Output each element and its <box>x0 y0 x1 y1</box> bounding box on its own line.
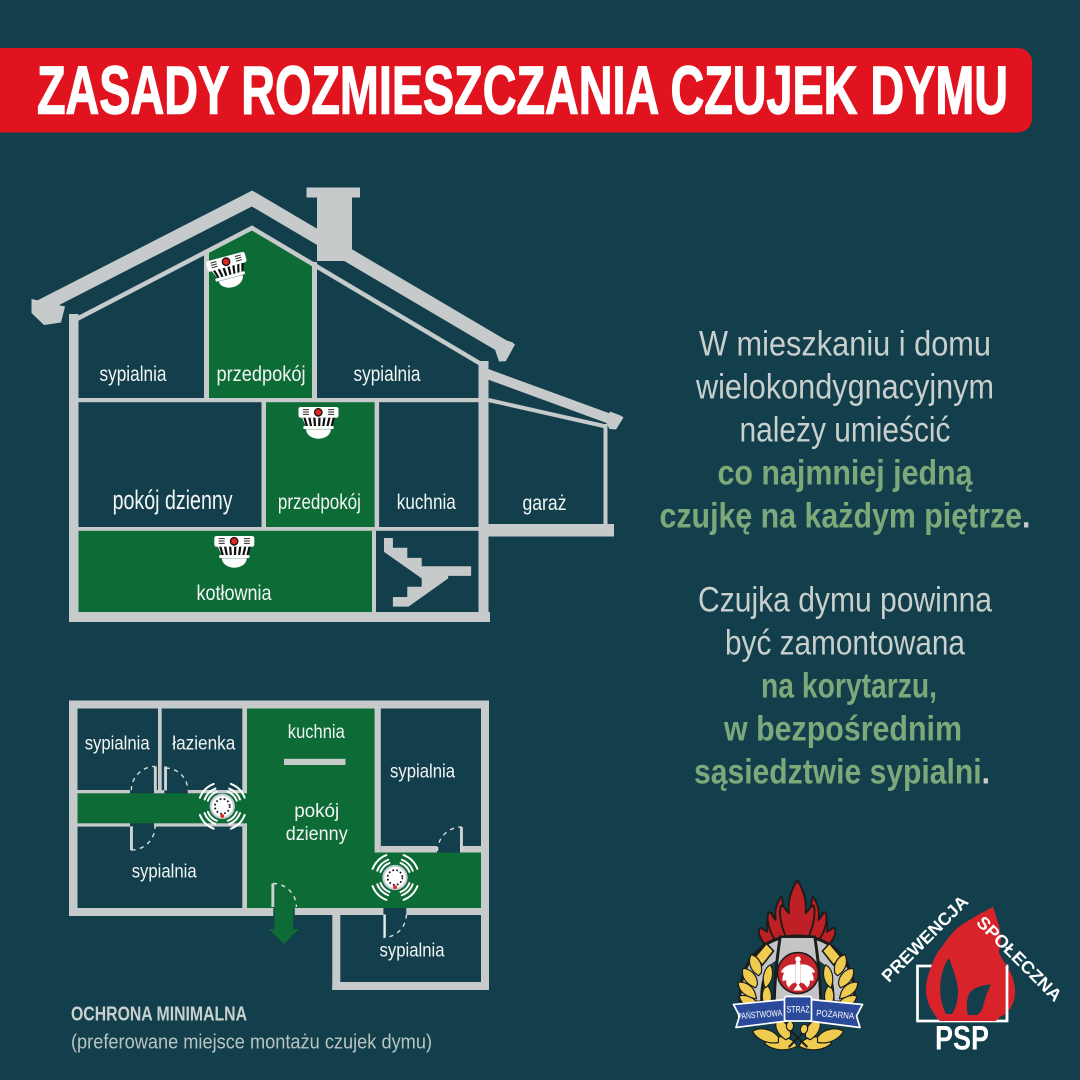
svg-text:garaż: garaż <box>523 491 567 515</box>
svg-text:W mieszkaniu i domu: W mieszkaniu i domu <box>699 324 991 364</box>
svg-text:sypialnia: sypialnia <box>85 733 150 755</box>
svg-text:dzienny: dzienny <box>286 823 348 845</box>
svg-text:należy umieścić: należy umieścić <box>740 410 951 450</box>
svg-text:sypialnia: sypialnia <box>390 761 455 783</box>
svg-text:pokój dzienny: pokój dzienny <box>113 485 233 515</box>
svg-text:przedpokój: przedpokój <box>278 490 361 514</box>
svg-text:kotłownia: kotłownia <box>197 581 272 605</box>
svg-text:STRAŻ: STRAŻ <box>787 1005 810 1015</box>
svg-text:co najmniej jedną: co najmniej jedną <box>718 453 973 493</box>
svg-text:być zamontowana: być zamontowana <box>725 623 965 663</box>
svg-text:przedpokój: przedpokój <box>217 362 306 386</box>
svg-text:Czujka dymu powinna: Czujka dymu powinna <box>698 580 992 620</box>
svg-text:łazienka: łazienka <box>172 733 235 755</box>
svg-text:ZASADY ROZMIESZCZANIA CZUJEK D: ZASADY ROZMIESZCZANIA CZUJEK DYMU <box>37 53 1008 129</box>
svg-text:wielokondygnacyjnym: wielokondygnacyjnym <box>695 367 994 407</box>
svg-text:sypialnia: sypialnia <box>132 861 197 883</box>
svg-text:kuchnia: kuchnia <box>397 490 456 514</box>
svg-text:sypialnia: sypialnia <box>100 362 167 386</box>
svg-text:na korytarzu,: na korytarzu, <box>761 666 937 706</box>
svg-text:OCHRONA MINIMALNA: OCHRONA MINIMALNA <box>71 1003 247 1026</box>
svg-text:czujkę na każdym piętrze.: czujkę na każdym piętrze. <box>660 496 1031 536</box>
svg-text:sypialnia: sypialnia <box>354 362 421 386</box>
svg-text:sąsiedztwie sypialni.: sąsiedztwie sypialni. <box>694 752 990 792</box>
svg-text:kuchnia: kuchnia <box>288 721 345 743</box>
svg-text:(preferowane miejsce montażu c: (preferowane miejsce montażu czujek dymu… <box>71 1031 432 1054</box>
svg-text:sypialnia: sypialnia <box>380 940 445 962</box>
svg-text:PSP: PSP <box>935 1020 989 1058</box>
svg-text:pokój: pokój <box>294 800 339 822</box>
svg-text:w bezpośrednim: w bezpośrednim <box>723 709 962 749</box>
